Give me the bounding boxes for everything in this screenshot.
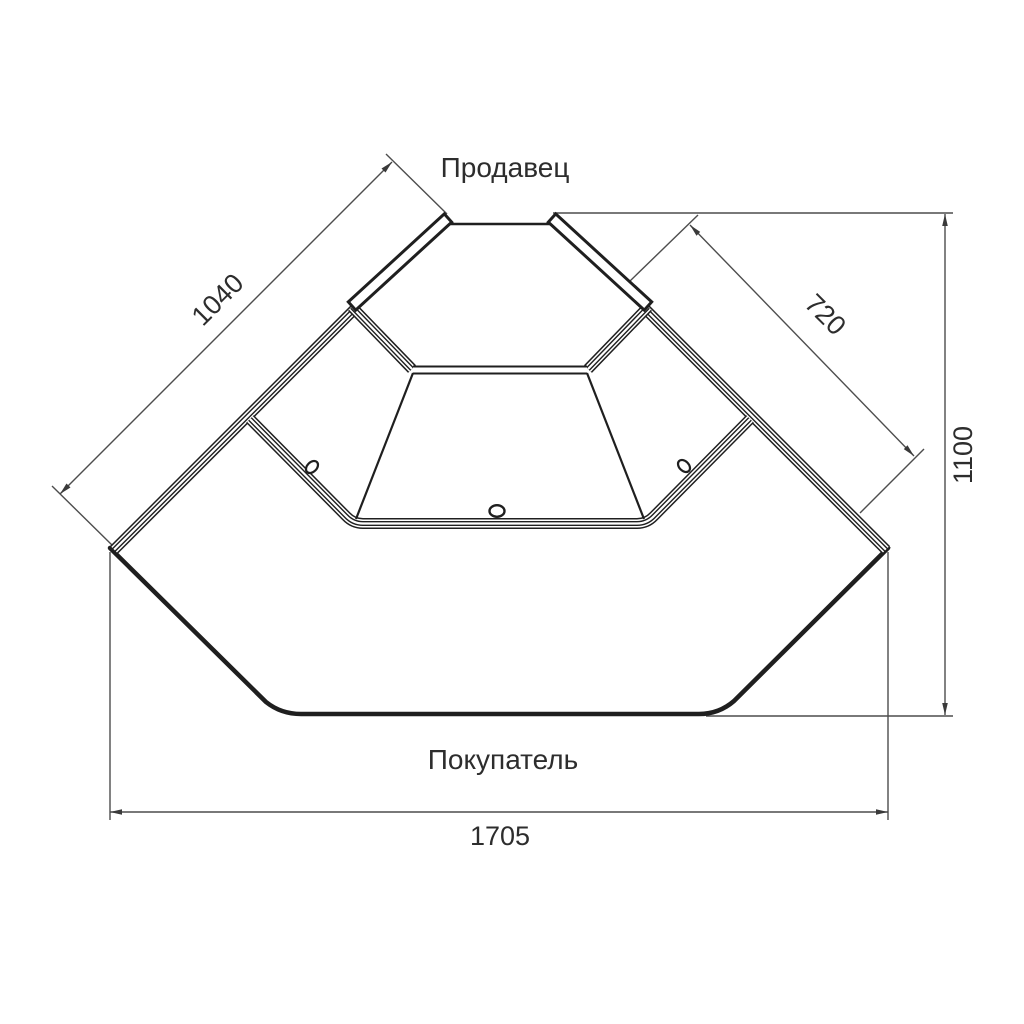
right-hole — [676, 458, 693, 475]
technical-drawing-canvas: Продавец Покупатель 1040 720 1100 1705 — [0, 0, 1024, 1024]
corner-counter-drawing: Продавец Покупатель 1040 720 1100 1705 — [0, 0, 1024, 1024]
inner-shelf-trapezoid — [356, 370, 644, 519]
top-left-glass-bar — [348, 214, 451, 310]
dimension-value-720: 720 — [799, 288, 852, 341]
right-glass-strip — [645, 309, 890, 556]
shelf-holes — [304, 458, 693, 517]
left-glass-strip — [110, 309, 355, 556]
counter-front-outline — [110, 548, 888, 714]
seller-label: Продавец — [441, 152, 570, 183]
dimension-value-1040: 1040 — [186, 268, 250, 332]
upper-left-connector — [352, 307, 412, 369]
buyer-label: Покупатель — [428, 744, 578, 775]
bottom-hole — [490, 505, 505, 517]
top-right-glass-bar — [548, 214, 651, 310]
dimension-value-1100: 1100 — [948, 426, 978, 484]
dimension-value-1705: 1705 — [470, 821, 530, 851]
upper-right-connector — [588, 307, 648, 369]
dimension-line-720 — [690, 225, 914, 456]
dimension-arrowheads — [60, 162, 948, 815]
